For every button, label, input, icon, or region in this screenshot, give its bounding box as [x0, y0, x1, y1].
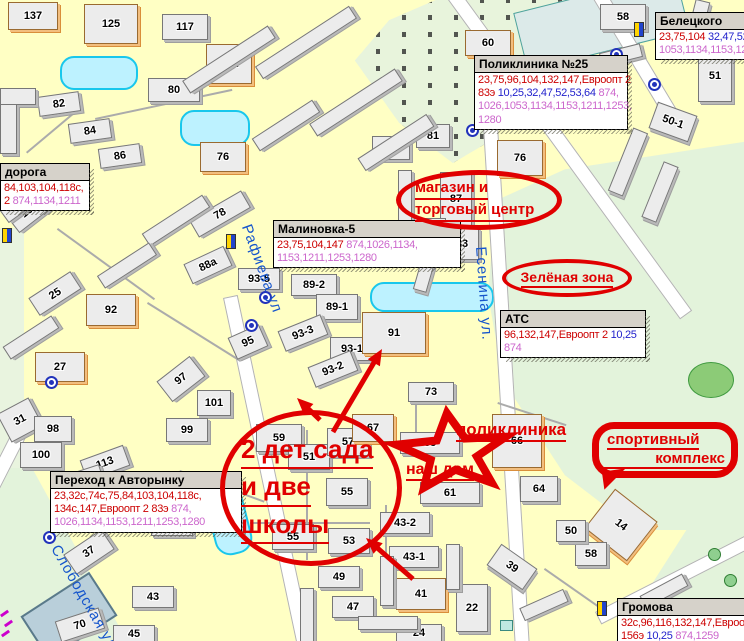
building-63: 63 [400, 432, 460, 454]
building-number: 49 [333, 571, 345, 583]
building-number: 58 [585, 548, 597, 560]
building-43-1: 43-1 [389, 546, 439, 568]
bus-shelter-icon [597, 601, 607, 616]
infobox-shadow [460, 226, 465, 272]
building-98: 98 [34, 416, 72, 442]
building-number: 99 [181, 424, 193, 436]
building-86: 86 [98, 143, 142, 169]
building-50-1: 50-1 [648, 102, 697, 143]
building-block [446, 544, 460, 590]
infobox-routes: 23,32с,74с,75,84,103,104,118с,134с,147,Е… [51, 489, 241, 532]
building-45: 45 [113, 625, 155, 641]
building-39: 39 [487, 544, 538, 591]
building-number: 100 [32, 449, 50, 461]
infobox-shadow [480, 129, 632, 134]
route-numbers: 10,25 [644, 630, 673, 641]
building-60: 60 [465, 30, 511, 56]
annotation-polyclinic: поликлиника [456, 420, 566, 442]
building-number: 101 [205, 397, 223, 409]
building-number: 76 [217, 151, 229, 163]
infobox-Переход к Авторынку[interactable]: Переход к Авторынку23,32с,74с,75,84,103,… [50, 471, 242, 533]
building-91: 91 [362, 312, 426, 354]
pond [60, 56, 138, 90]
building-88а: 88а [183, 246, 232, 285]
infobox-title: Громова [618, 599, 744, 616]
annotation-text: Зелёная зона [521, 268, 614, 289]
building-number: 70 [72, 617, 87, 632]
building-number: 51 [709, 70, 721, 82]
route-numbers: 23,75,96,104,132,147,Евроопт 2 [478, 74, 631, 86]
building-number: 89-1 [326, 301, 348, 313]
annotation-green-zone: Зелёная зона [502, 259, 632, 297]
infobox-Малиновка-5[interactable]: Малиновка-523,75,104,147 874,1026,1134,1… [273, 220, 461, 268]
annotation-kindergartens-schools: 2 дет садаи двешколы [220, 410, 402, 566]
building-84: 84 [68, 118, 112, 144]
building-49: 49 [318, 566, 360, 588]
building-block [380, 556, 394, 606]
building-number: 50 [565, 525, 577, 537]
tree-icon [708, 548, 721, 561]
building-block [255, 6, 357, 80]
building-number: 43-2 [394, 517, 416, 529]
building-block [300, 588, 314, 641]
building-22: 22 [456, 584, 488, 632]
route-numbers: 32с,96,116,132,147,Евроопт [621, 617, 744, 629]
building-number: 76 [514, 152, 526, 164]
infobox-shadow [56, 532, 246, 537]
bubble-tail [602, 468, 628, 489]
building-137: 137 [8, 2, 58, 30]
building-number: 64 [533, 483, 545, 495]
small-structure [500, 620, 513, 631]
building-number: 93-2 [321, 359, 346, 378]
infobox-shadow [6, 210, 94, 215]
building-number: 41 [415, 588, 427, 600]
building-number: 50-1 [661, 113, 686, 132]
infobox-shadow [89, 169, 94, 215]
building-76: 76 [200, 142, 246, 172]
building-number: 47 [347, 601, 359, 613]
bus-shelter-icon [226, 234, 236, 249]
building-61: 61 [420, 482, 480, 504]
route-numbers: 10,25,32,47,52,53,64 [495, 87, 596, 99]
building-number: 82 [52, 97, 66, 111]
infobox-routes: 23,75,96,104,132,147,Евроопт 283э 10,25,… [475, 73, 627, 129]
infobox-routes: 23,75,104,147 874,1026,1134,1153,1211,12… [274, 238, 460, 267]
route-numbers: 1026,1134,1153,1211,1253,1280 [54, 516, 205, 528]
route-numbers: 874,1259 [673, 630, 719, 641]
building-number: 86 [113, 149, 127, 163]
infobox-title: Переход к Авторынку [51, 472, 241, 489]
route-numbers: 23,32с,74с,75,84,103,104,118с, [54, 490, 201, 502]
route-numbers: 83э [478, 87, 495, 99]
building-number: 93-3 [291, 323, 316, 342]
infobox-routes: 23,75,104 32,47,52,51053,1134,1153,1211 [656, 30, 744, 59]
annotation-text: торговый центр [415, 200, 534, 222]
route-numbers: 23,75,104 [659, 31, 705, 43]
building-number: 98 [47, 423, 59, 435]
building-number: 63 [424, 437, 436, 449]
infobox-Белецкого[interactable]: Белецкого23,75,104 32,47,52,51053,1134,1… [655, 12, 744, 60]
infobox-дорога[interactable]: дорога84,103,104,118с,2 874,1134,1211 [0, 163, 90, 211]
route-numbers: 1280 [478, 114, 501, 126]
infobox-shadow [279, 267, 465, 272]
building-50: 50 [556, 520, 586, 542]
infobox-title: Белецкого [656, 13, 744, 30]
map-canvas[interactable]: 13712511782а808284867660585150-18181а768… [0, 0, 744, 641]
building-25: 25 [28, 271, 81, 316]
building-block [0, 88, 36, 105]
building-number: 89-2 [303, 279, 325, 291]
route-numbers: 1026,1053,1134,1153,1211,1253, [478, 100, 632, 112]
building-number: 73 [425, 386, 437, 398]
bus-stop-icon [45, 376, 58, 389]
annotation-sports-complex: спортивныйкомплекс [592, 422, 738, 478]
infobox-title: АТС [501, 311, 645, 328]
bus-stop-icon [245, 319, 258, 332]
bus-shelter-icon [634, 22, 644, 37]
building-93-2: 93-2 [308, 350, 359, 388]
route-numbers: 874, [596, 87, 619, 99]
annotation-text: комплекс [599, 450, 731, 469]
building-block [0, 104, 17, 154]
route-numbers: 96,132,147,Евроопт 2 [504, 329, 608, 341]
infobox-shadow [506, 357, 650, 362]
pond [180, 110, 250, 146]
building-47: 47 [332, 596, 374, 618]
infobox-АТС[interactable]: АТС96,132,147,Евроопт 2 10,25874 [500, 310, 646, 358]
building-117: 117 [162, 14, 208, 40]
annotation-text: спортивный [607, 431, 699, 450]
annotation-text: школы [241, 507, 329, 544]
route-numbers: 1153,1211,1253,1280 [277, 252, 377, 264]
building-89-2: 89-2 [291, 274, 337, 296]
building-number: 58 [617, 11, 629, 23]
building-number: 117 [176, 21, 194, 33]
infobox-Громова[interactable]: Громова32с,96,116,132,147,Евроопт156э 10… [617, 598, 744, 641]
building-block [358, 616, 418, 630]
building-number: 45 [128, 628, 140, 640]
building-number: 43 [147, 591, 159, 603]
building-number: 60 [482, 37, 494, 49]
building-number: 27 [54, 361, 66, 373]
building-64: 64 [520, 476, 558, 502]
route-numbers: 874, [168, 503, 191, 515]
building-number: 78 [212, 206, 229, 223]
route-numbers: 23,75,104,147 [277, 239, 343, 251]
building-58: 58 [575, 542, 607, 566]
infobox-title: дорога [1, 164, 89, 181]
infobox-title: Поликлиника №25 [475, 56, 627, 73]
route-numbers: 10,25 [608, 329, 637, 341]
route-numbers: 874,1026,1134, [343, 239, 417, 251]
infobox-shadow [661, 59, 744, 64]
building-number: 92 [105, 304, 117, 316]
annotation-our-house: наш дом [406, 460, 474, 481]
building-number: 31 [12, 412, 28, 428]
building-125: 125 [84, 4, 138, 44]
infobox-routes: 32с,96,116,132,147,Евроопт156э 10,25 874… [618, 616, 744, 641]
building-number: 14 [612, 517, 629, 534]
route-numbers: 84,103,104,118с, [4, 182, 83, 194]
annotation-text: магазин и [415, 178, 488, 200]
building-89-1: 89-1 [316, 294, 358, 320]
bus-stop-icon [43, 531, 56, 544]
tree-icon [724, 574, 737, 587]
building-101: 101 [197, 390, 231, 416]
building-number: 80 [168, 84, 180, 96]
building-92: 92 [86, 294, 136, 326]
building-number: 61 [444, 487, 456, 499]
building-43: 43 [132, 586, 174, 608]
infobox-shadow [627, 61, 632, 134]
building-number: 39 [504, 559, 521, 576]
bus-stop-icon [648, 78, 661, 91]
annotation-text: поликлиника [456, 420, 566, 442]
building-93-3: 93-3 [278, 314, 329, 352]
annotation-text: наш дом [406, 460, 474, 481]
building-number: 91 [388, 327, 400, 339]
route-numbers: 1053,1134,1153,1211 [659, 44, 744, 56]
building-number: 25 [47, 285, 64, 302]
infobox-shadow [645, 316, 650, 362]
building-41: 41 [396, 578, 446, 610]
building-number: 22 [466, 602, 478, 614]
route-numbers: 874,1134,1211 [10, 195, 81, 207]
building-number: 43-1 [403, 551, 425, 563]
route-numbers: 134с,147,Евроопт 2 83э [54, 503, 168, 515]
park-pond [688, 362, 734, 398]
building-100: 100 [20, 442, 62, 468]
building-number: 88а [197, 256, 219, 275]
bus-shelter-icon [2, 228, 12, 243]
building-73: 73 [408, 382, 454, 402]
route-numbers: 874 [504, 342, 521, 354]
infobox-routes: 96,132,147,Евроопт 2 10,25874 [501, 328, 645, 357]
route-numbers: 32,47,52,5 [705, 31, 744, 43]
infobox-routes: 84,103,104,118с,2 874,1134,1211 [1, 181, 89, 210]
annotation-shop-area: магазин иторговый центр [396, 170, 562, 230]
route-numbers: 156э [621, 630, 644, 641]
building-number: 37 [81, 544, 98, 561]
building-number: 81 [427, 130, 439, 142]
building-number: 137 [24, 10, 42, 22]
infobox-Поликлиника №25[interactable]: Поликлиника №2523,75,96,104,132,147,Евро… [474, 55, 628, 130]
building-number: 97 [172, 371, 189, 388]
building-number: 95 [240, 334, 256, 350]
annotation-text: и две [241, 469, 311, 506]
annotation-text: 2 дет сада [241, 432, 373, 469]
building-27: 27 [35, 352, 85, 382]
building-99: 99 [166, 418, 208, 442]
building-number: 125 [102, 18, 120, 30]
building-number: 84 [83, 124, 97, 138]
